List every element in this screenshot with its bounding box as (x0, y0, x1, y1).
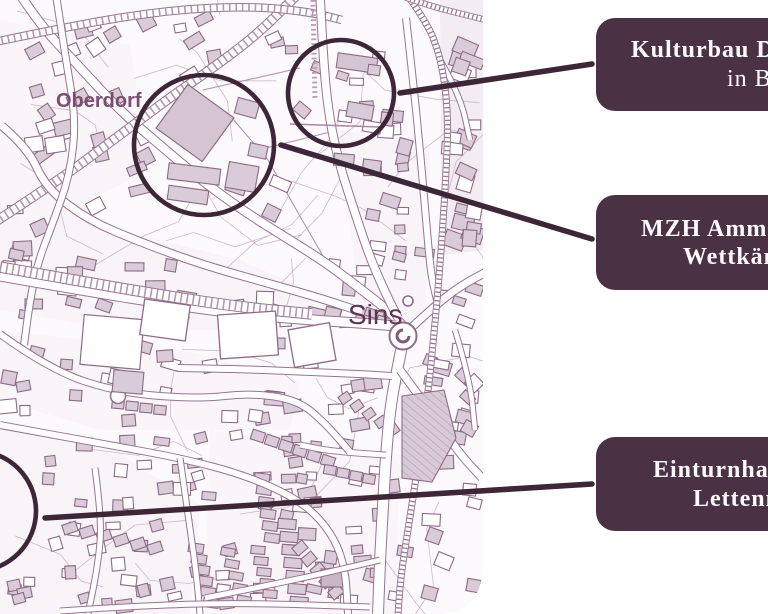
svg-text:Sins: Sins (348, 299, 402, 330)
svg-text:Oberdorf: Oberdorf (56, 90, 142, 112)
